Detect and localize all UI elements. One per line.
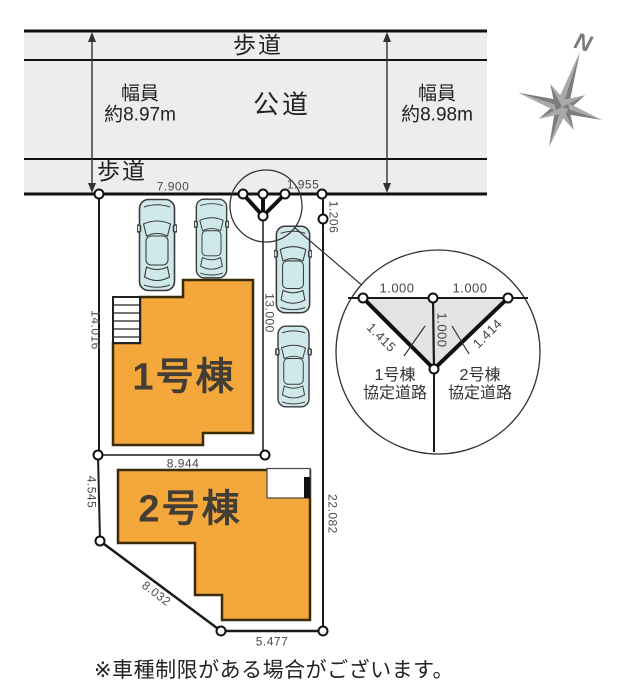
site-plan: 歩道 公道 歩道 幅員 約8.97m 幅員 約8.98m N 1号棟 2号棟 7… xyxy=(0,0,617,690)
car-icon xyxy=(194,199,229,278)
building-2-porch xyxy=(267,469,310,499)
agreement-road-detail xyxy=(336,250,540,454)
detail-dim-right-1000: 1.000 xyxy=(452,282,487,297)
road-width-right-line2: 約8.98m xyxy=(401,105,473,126)
vehicle-restriction-note: ※車種制限がある場合がございます。 xyxy=(94,654,454,684)
dim-7900: 7.900 xyxy=(157,180,190,193)
sidewalk-label-bottom: 歩道 xyxy=(97,159,147,185)
road-width-right: 幅員 約8.98m xyxy=(401,84,473,127)
agreement-road-1-line1: 1号棟 xyxy=(363,367,427,385)
car-icon xyxy=(276,326,311,407)
dim-22082: 22.082 xyxy=(325,494,338,534)
agreement-road-1-line2: 協定道路 xyxy=(363,385,427,403)
sidewalk-label-top: 歩道 xyxy=(233,33,283,59)
agreement-road-2-label: 2号棟 協定道路 xyxy=(448,367,512,403)
agreement-road-1-label: 1号棟 協定道路 xyxy=(363,367,427,403)
dim-1955: 1.955 xyxy=(287,178,320,191)
dim-8944: 8.944 xyxy=(167,457,200,470)
compass-rose-icon xyxy=(505,38,617,160)
dim-1206: 1.206 xyxy=(326,201,339,234)
dim-5477: 5.477 xyxy=(256,635,289,648)
detail-dim-vert-1000: 1.000 xyxy=(434,312,449,347)
detail-dim-left-1000: 1.000 xyxy=(379,282,414,297)
road-width-right-line1: 幅員 xyxy=(401,84,473,105)
dim-13000: 13.000 xyxy=(262,293,275,333)
public-road-label: 公道 xyxy=(253,90,311,119)
dim-14016: 14.016 xyxy=(88,310,101,350)
agreement-road-2-line1: 2号棟 xyxy=(448,367,512,385)
car-icon xyxy=(137,200,177,291)
road-width-left-line2: 約8.97m xyxy=(104,105,176,126)
building-2-label: 2号棟 xyxy=(138,489,241,532)
dim-4545: 4.545 xyxy=(84,476,97,509)
agreement-road-2-line2: 協定道路 xyxy=(448,385,512,403)
road-width-left: 幅員 約8.97m xyxy=(104,84,176,127)
building-1-label: 1号棟 xyxy=(132,357,235,400)
road-width-left-line1: 幅員 xyxy=(104,84,176,105)
building-1-stairs xyxy=(113,297,140,343)
